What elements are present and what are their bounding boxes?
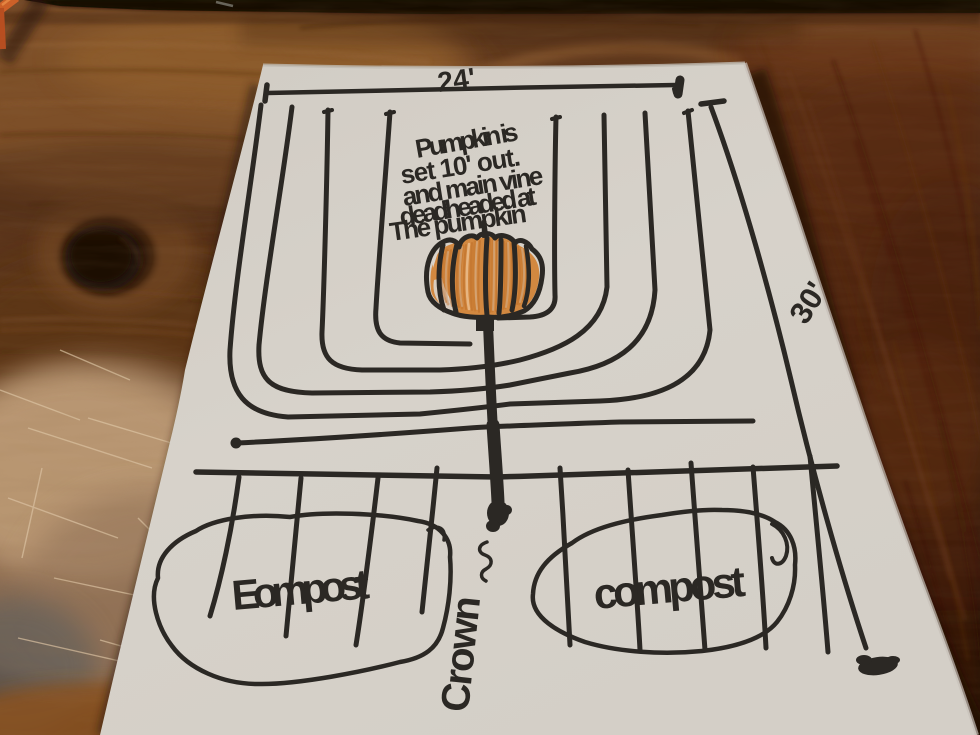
svg-text:24': 24' (436, 62, 478, 98)
